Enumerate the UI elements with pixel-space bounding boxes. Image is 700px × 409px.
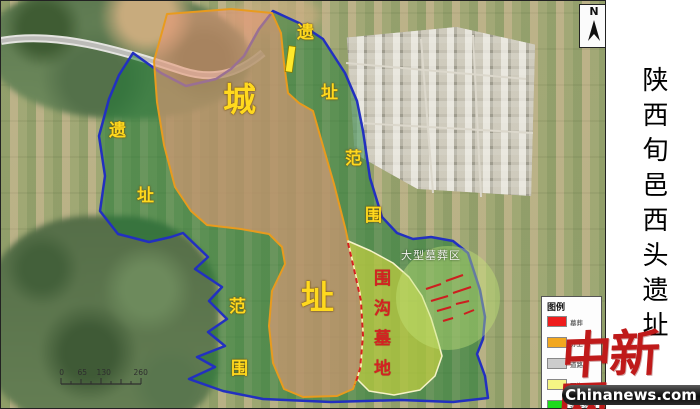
- city-label: 城: [223, 83, 256, 116]
- boundary-char: 址: [137, 188, 154, 205]
- ditch-cemetery-label: 围沟墓地: [371, 269, 388, 401]
- scale-tick-label: 260: [134, 368, 148, 377]
- boundary-char: 址: [321, 85, 338, 102]
- scale-tick-label: 65: [77, 368, 87, 377]
- scale-bar-ticks: [59, 377, 145, 386]
- scale-tick-label: 130: [97, 368, 111, 377]
- boundary-char: 围: [365, 208, 382, 225]
- tomb-area-label: 大型墓葬区: [401, 247, 461, 263]
- north-label: N: [580, 5, 606, 18]
- north-arrow-icon: [581, 18, 606, 44]
- boundary-char: 范: [345, 151, 362, 168]
- figure-title: 陕西旬邑西头遗址: [640, 66, 666, 346]
- boundary-char: 遗: [109, 123, 126, 140]
- figure: 遗 址 范 围 遗 址 范 围 城 址 围沟墓地 大型墓葬区 N 0 65 13…: [0, 0, 700, 409]
- site-label: 址: [301, 281, 334, 314]
- satellite-map: 遗 址 范 围 遗 址 范 围 城 址 围沟墓地 大型墓葬区 N 0 65 13…: [0, 0, 606, 409]
- scale-tick-label: 0: [59, 368, 64, 377]
- scale-bar: 0 65 130 260: [59, 368, 145, 386]
- north-arrow: N: [579, 4, 606, 48]
- legend-title: 图例: [547, 300, 601, 313]
- chinanews-banner: Chinanews.com: [562, 385, 700, 405]
- scale-bar-numbers: 0 65 130 260: [59, 368, 145, 377]
- boundary-char: 围: [231, 361, 248, 378]
- boundary-char: 范: [229, 299, 246, 316]
- village-roads: [346, 35, 533, 197]
- legend-swatch-red: [547, 316, 567, 327]
- map-overlay-graphics: [1, 1, 605, 408]
- boundary-char: 遗: [297, 25, 314, 42]
